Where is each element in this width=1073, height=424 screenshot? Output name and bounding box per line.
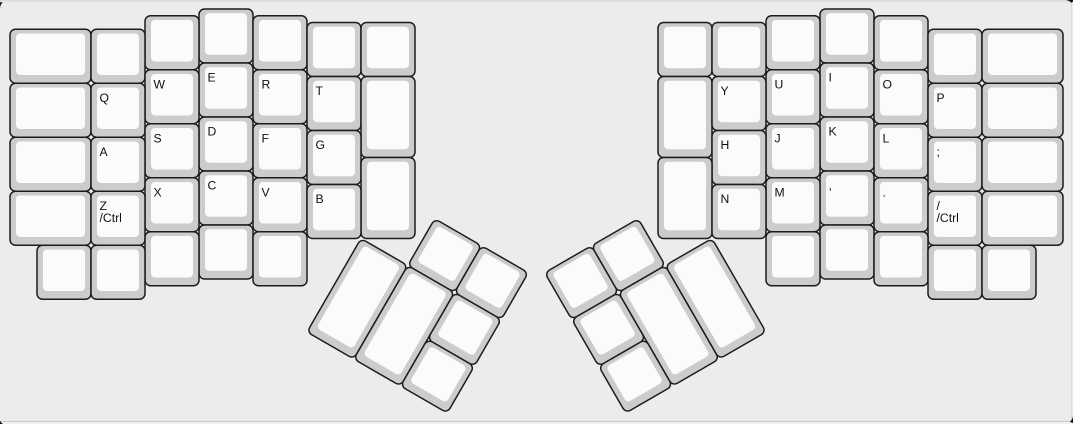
svg-text:J: J: [775, 131, 781, 145]
svg-text:U: U: [775, 77, 784, 91]
svg-text:.: .: [883, 185, 886, 199]
svg-text:D: D: [208, 125, 217, 139]
svg-text:O: O: [883, 77, 892, 91]
svg-text:/Ctrl: /Ctrl: [937, 211, 959, 225]
svg-text:C: C: [208, 179, 217, 193]
svg-text:V: V: [262, 185, 271, 199]
svg-text:,: ,: [829, 179, 832, 193]
svg-text:W: W: [154, 77, 166, 91]
svg-text:G: G: [316, 138, 325, 152]
svg-text:/Ctrl: /Ctrl: [100, 211, 122, 225]
svg-text:H: H: [721, 138, 730, 152]
svg-text:T: T: [316, 84, 324, 98]
svg-text:K: K: [829, 125, 837, 139]
svg-text:Q: Q: [100, 91, 109, 105]
svg-text:N: N: [721, 192, 730, 206]
svg-text:E: E: [208, 71, 216, 85]
svg-text:M: M: [775, 185, 785, 199]
svg-text:B: B: [316, 192, 324, 206]
svg-text:P: P: [937, 91, 945, 105]
svg-text:;: ;: [937, 145, 940, 159]
svg-text:Y: Y: [721, 84, 729, 98]
svg-text:S: S: [154, 131, 162, 145]
svg-text:X: X: [154, 185, 162, 199]
svg-text:A: A: [100, 145, 109, 159]
svg-text:F: F: [262, 131, 269, 145]
svg-text:I: I: [829, 71, 832, 85]
svg-text:R: R: [262, 77, 271, 91]
svg-text:L: L: [883, 131, 890, 145]
